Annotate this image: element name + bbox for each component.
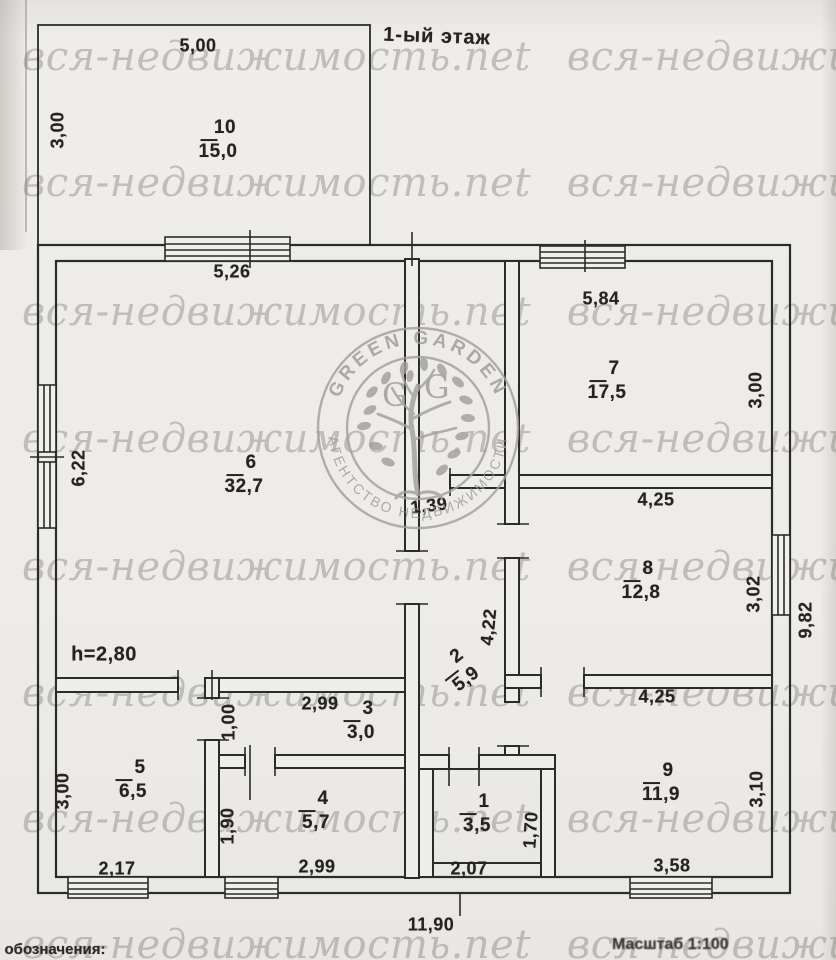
room-area: 3,0 (347, 723, 375, 743)
room-area: 32,7 (225, 477, 264, 497)
scanned-floor-plan-page: вся-недвижимость.netвся-недвижимость.net… (0, 0, 836, 960)
room-number: 6 (245, 453, 256, 473)
dimension-label: 4,25 (637, 490, 674, 511)
dimension-label: 5,26 (213, 262, 250, 283)
ceiling-height-note: h=2,80 (71, 644, 137, 667)
room-area: 5,9 (449, 663, 483, 696)
dimension-label: 2,17 (98, 859, 135, 880)
dimension-label: 1,90 (218, 807, 239, 844)
room-label: 1015,0 (199, 118, 238, 162)
room-area: 17,5 (588, 383, 627, 403)
room-number: 1 (478, 792, 489, 812)
room-label: 717,5 (588, 359, 627, 403)
room-number: 9 (662, 761, 673, 781)
room-number: 7 (608, 359, 619, 379)
room-number: 5 (134, 758, 145, 778)
dimension-label: 5,84 (582, 289, 619, 310)
room-number: 4 (317, 789, 328, 809)
room-number: 3 (362, 699, 373, 719)
plan-labels: 5,003,005,265,843,006,221,394,253,029,82… (0, 0, 836, 960)
room-number: 8 (642, 559, 653, 579)
dimension-label: 3,58 (653, 856, 690, 877)
dimension-label: 1,39 (409, 493, 448, 518)
dimension-label: 3,10 (747, 770, 768, 807)
room-label: 33,0 (344, 699, 379, 743)
room-label: 812,8 (622, 559, 661, 603)
dimension-label: 11,90 (408, 915, 455, 936)
dimension-label: 3,02 (744, 575, 765, 612)
room-label: 13,5 (460, 792, 495, 836)
room-area: 3,5 (463, 816, 491, 836)
room-label: 632,7 (225, 453, 264, 497)
room-area: 6,5 (119, 782, 147, 802)
dimension-label: 9,82 (796, 601, 817, 638)
floor-title: 1-ый этаж (383, 24, 491, 51)
room-label: 25,9 (432, 642, 487, 698)
room-label: 45,7 (299, 789, 334, 833)
dimension-label: 1,70 (519, 811, 543, 849)
dimension-label: 6,22 (69, 449, 90, 486)
dimension-label: 5,00 (179, 36, 216, 57)
room-area: 15,0 (199, 142, 238, 162)
room-area: 11,9 (642, 785, 680, 805)
dimension-label: 2,07 (450, 859, 487, 880)
dimension-label: 4,25 (638, 687, 675, 708)
dimension-label: 2,99 (298, 857, 335, 878)
dimension-label: 3,00 (48, 111, 69, 148)
room-label: 911,9 (642, 761, 680, 805)
room-number: 10 (214, 118, 236, 138)
legend-caption: е обозначения: (0, 941, 105, 958)
scale-caption: Масштаб 1:100 (612, 936, 729, 954)
dimension-label: 2,99 (301, 694, 338, 715)
room-area: 12,8 (622, 583, 661, 603)
dimension-label: 3,00 (53, 772, 74, 809)
dimension-label: 4,22 (477, 607, 502, 646)
dimension-label: 3,00 (746, 371, 767, 408)
room-area: 5,7 (302, 813, 330, 833)
room-label: 56,5 (116, 758, 151, 802)
dimension-label: 1,00 (219, 703, 240, 740)
room-number: 2 (447, 645, 468, 668)
